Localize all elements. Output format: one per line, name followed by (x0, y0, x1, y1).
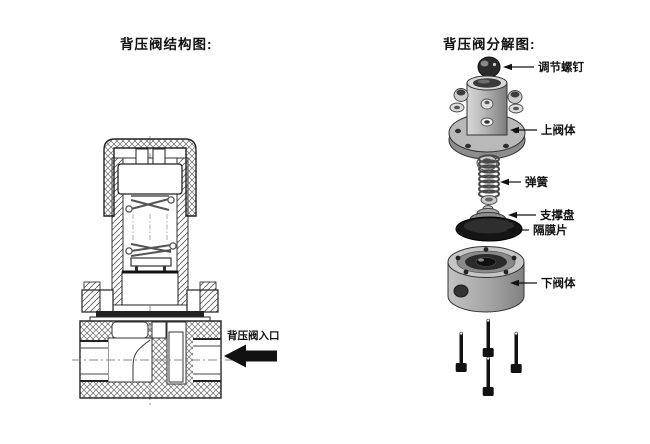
spring-seat-ring (481, 196, 497, 205)
label-spring: 弹簧 (525, 175, 548, 189)
spring-part (479, 155, 499, 197)
exploded-diagram: 调节螺钉 (448, 57, 584, 396)
label-adjust-screw: 调节螺钉 (538, 60, 584, 74)
valve-diagrams: 背压阀入口 调节螺钉 (0, 0, 650, 444)
label-lower-body: 下阀体 (541, 276, 576, 290)
leader-support-plate (508, 212, 536, 218)
bolt-center-bottom (483, 357, 494, 396)
inlet-label: 背压阀入口 (227, 329, 280, 342)
acorn-nut-left (454, 89, 468, 102)
label-support-plate: 支撑盘 (539, 208, 575, 222)
lower-body-part (448, 247, 524, 313)
lower-body-section (72, 321, 232, 398)
washer-left (450, 103, 464, 112)
page: 背压阀结构图: 背压阀分解图: (0, 0, 650, 444)
acorn-nut-right (508, 91, 522, 104)
piston-block (122, 272, 178, 305)
structure-diagram: 背压阀入口 (72, 136, 280, 408)
bolt-left (456, 332, 467, 372)
washer-right (509, 104, 523, 113)
bolt-right (511, 332, 522, 373)
diaphragm-section (90, 311, 210, 321)
inlet-arrow (224, 345, 277, 368)
label-diaphragm: 隔膜片 (533, 223, 568, 237)
leader-spring (500, 179, 521, 185)
bolt-center-top (483, 319, 494, 357)
leader-adjust-screw (503, 64, 534, 70)
label-upper-body: 上阀体 (541, 123, 576, 137)
